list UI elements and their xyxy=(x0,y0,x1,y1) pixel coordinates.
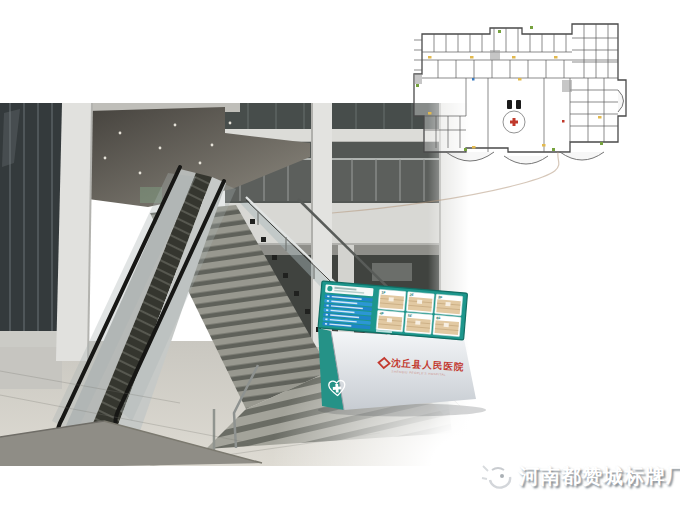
floor-map-panel: 6F xyxy=(433,315,461,337)
floor-map-panel: 3F xyxy=(435,294,463,316)
floor-map-panel: 2F xyxy=(406,292,434,314)
sign-overlay: 沈丘县人民医院 SHENQIU PEOPLE'S HOSPITAL xyxy=(0,0,680,510)
floor-map-panel: 4F xyxy=(376,310,404,332)
directory-rows xyxy=(322,294,372,329)
kiosk-base: 沈丘县人民医院 SHENQIU PEOPLE'S HOSPITAL xyxy=(318,328,476,410)
watermark-text: 河南都赞城标牌厂 xyxy=(519,463,680,490)
watermark: 河南都赞城标牌厂 xyxy=(478,456,680,496)
article-image: 沈丘县人民医院 SHENQIU PEOPLE'S HOSPITAL xyxy=(0,0,680,510)
kiosk-display-board: 1F 2F 3F xyxy=(318,281,467,340)
floor-map-panel: 5F xyxy=(405,313,433,335)
watermark-swirl-logo xyxy=(478,456,514,496)
plan-leader-line xyxy=(332,152,559,213)
floor-map-panel: 1F xyxy=(378,289,406,311)
